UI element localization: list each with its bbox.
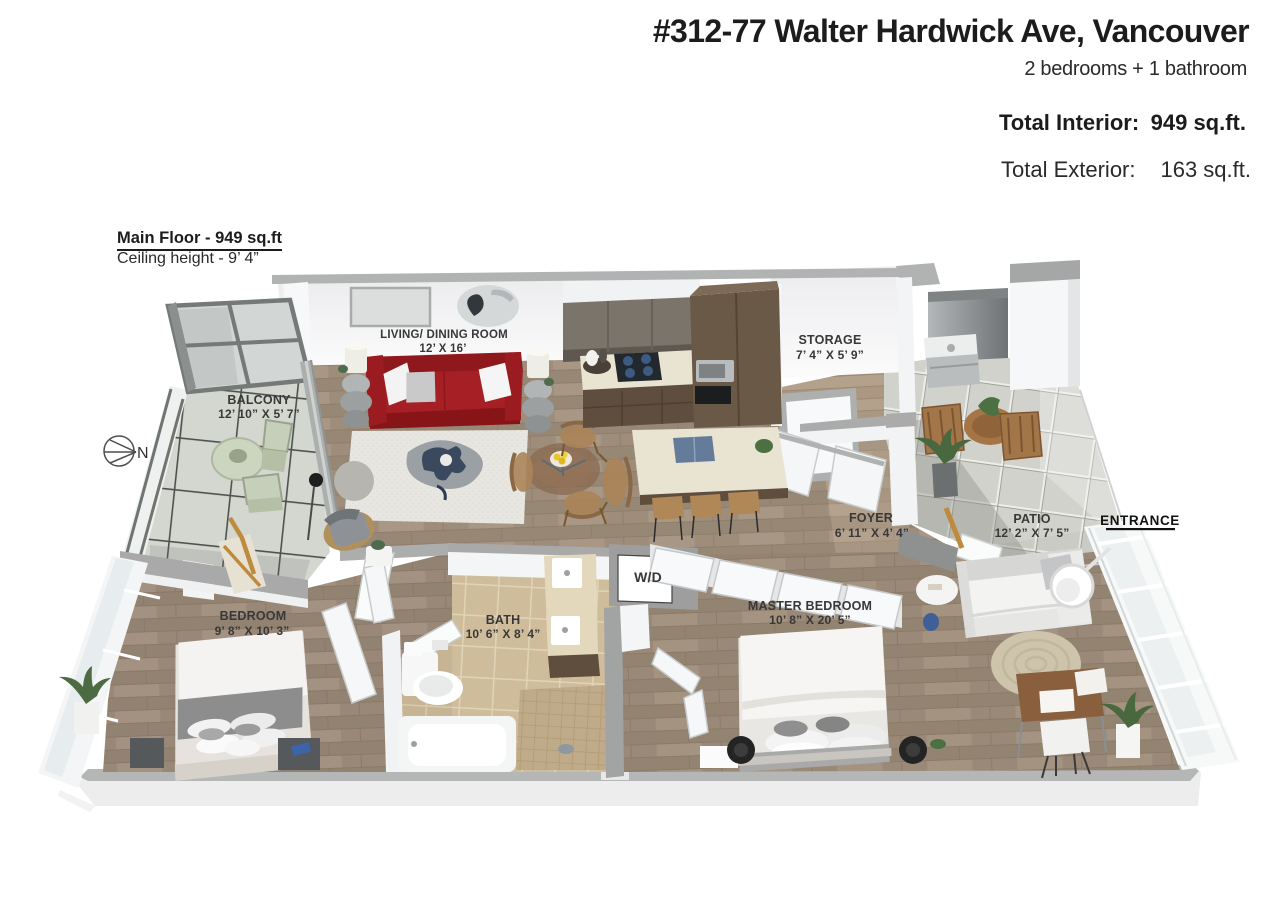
svg-text:12’ 2” X 7’ 5”: 12’ 2” X 7’ 5”: [995, 526, 1070, 540]
svg-text:BATH: BATH: [486, 613, 521, 627]
svg-text:10’ 6” X 8’ 4”: 10’ 6” X 8’ 4”: [466, 627, 541, 641]
svg-text:12’ 10” X 5’ 7”: 12’ 10” X 5’ 7”: [218, 407, 300, 421]
svg-text:BALCONY: BALCONY: [227, 393, 291, 407]
svg-text:N: N: [137, 445, 149, 462]
svg-text:STORAGE: STORAGE: [799, 333, 862, 347]
svg-text:LIVING/ DINING ROOM: LIVING/ DINING ROOM: [380, 329, 508, 341]
svg-text:BEDROOM: BEDROOM: [220, 609, 287, 623]
svg-text:6’ 11” X 4’ 4”: 6’ 11” X 4’ 4”: [835, 526, 909, 540]
svg-text:ENTRANCE: ENTRANCE: [1100, 513, 1180, 528]
svg-text:12’ X 16’: 12’ X 16’: [419, 343, 466, 355]
svg-text:PATIO: PATIO: [1013, 512, 1050, 526]
svg-text:MASTER BEDROOM: MASTER BEDROOM: [748, 599, 872, 613]
svg-text:FOYER: FOYER: [849, 511, 893, 525]
svg-text:7’ 4” X 5’ 9”: 7’ 4” X 5’ 9”: [796, 348, 864, 362]
svg-text:W/D: W/D: [634, 569, 662, 585]
svg-text:10’ 8” X 20’ 5”: 10’ 8” X 20’ 5”: [769, 613, 851, 627]
svg-text:9’ 8” X 10’ 3”: 9’ 8” X 10’ 3”: [215, 624, 290, 638]
